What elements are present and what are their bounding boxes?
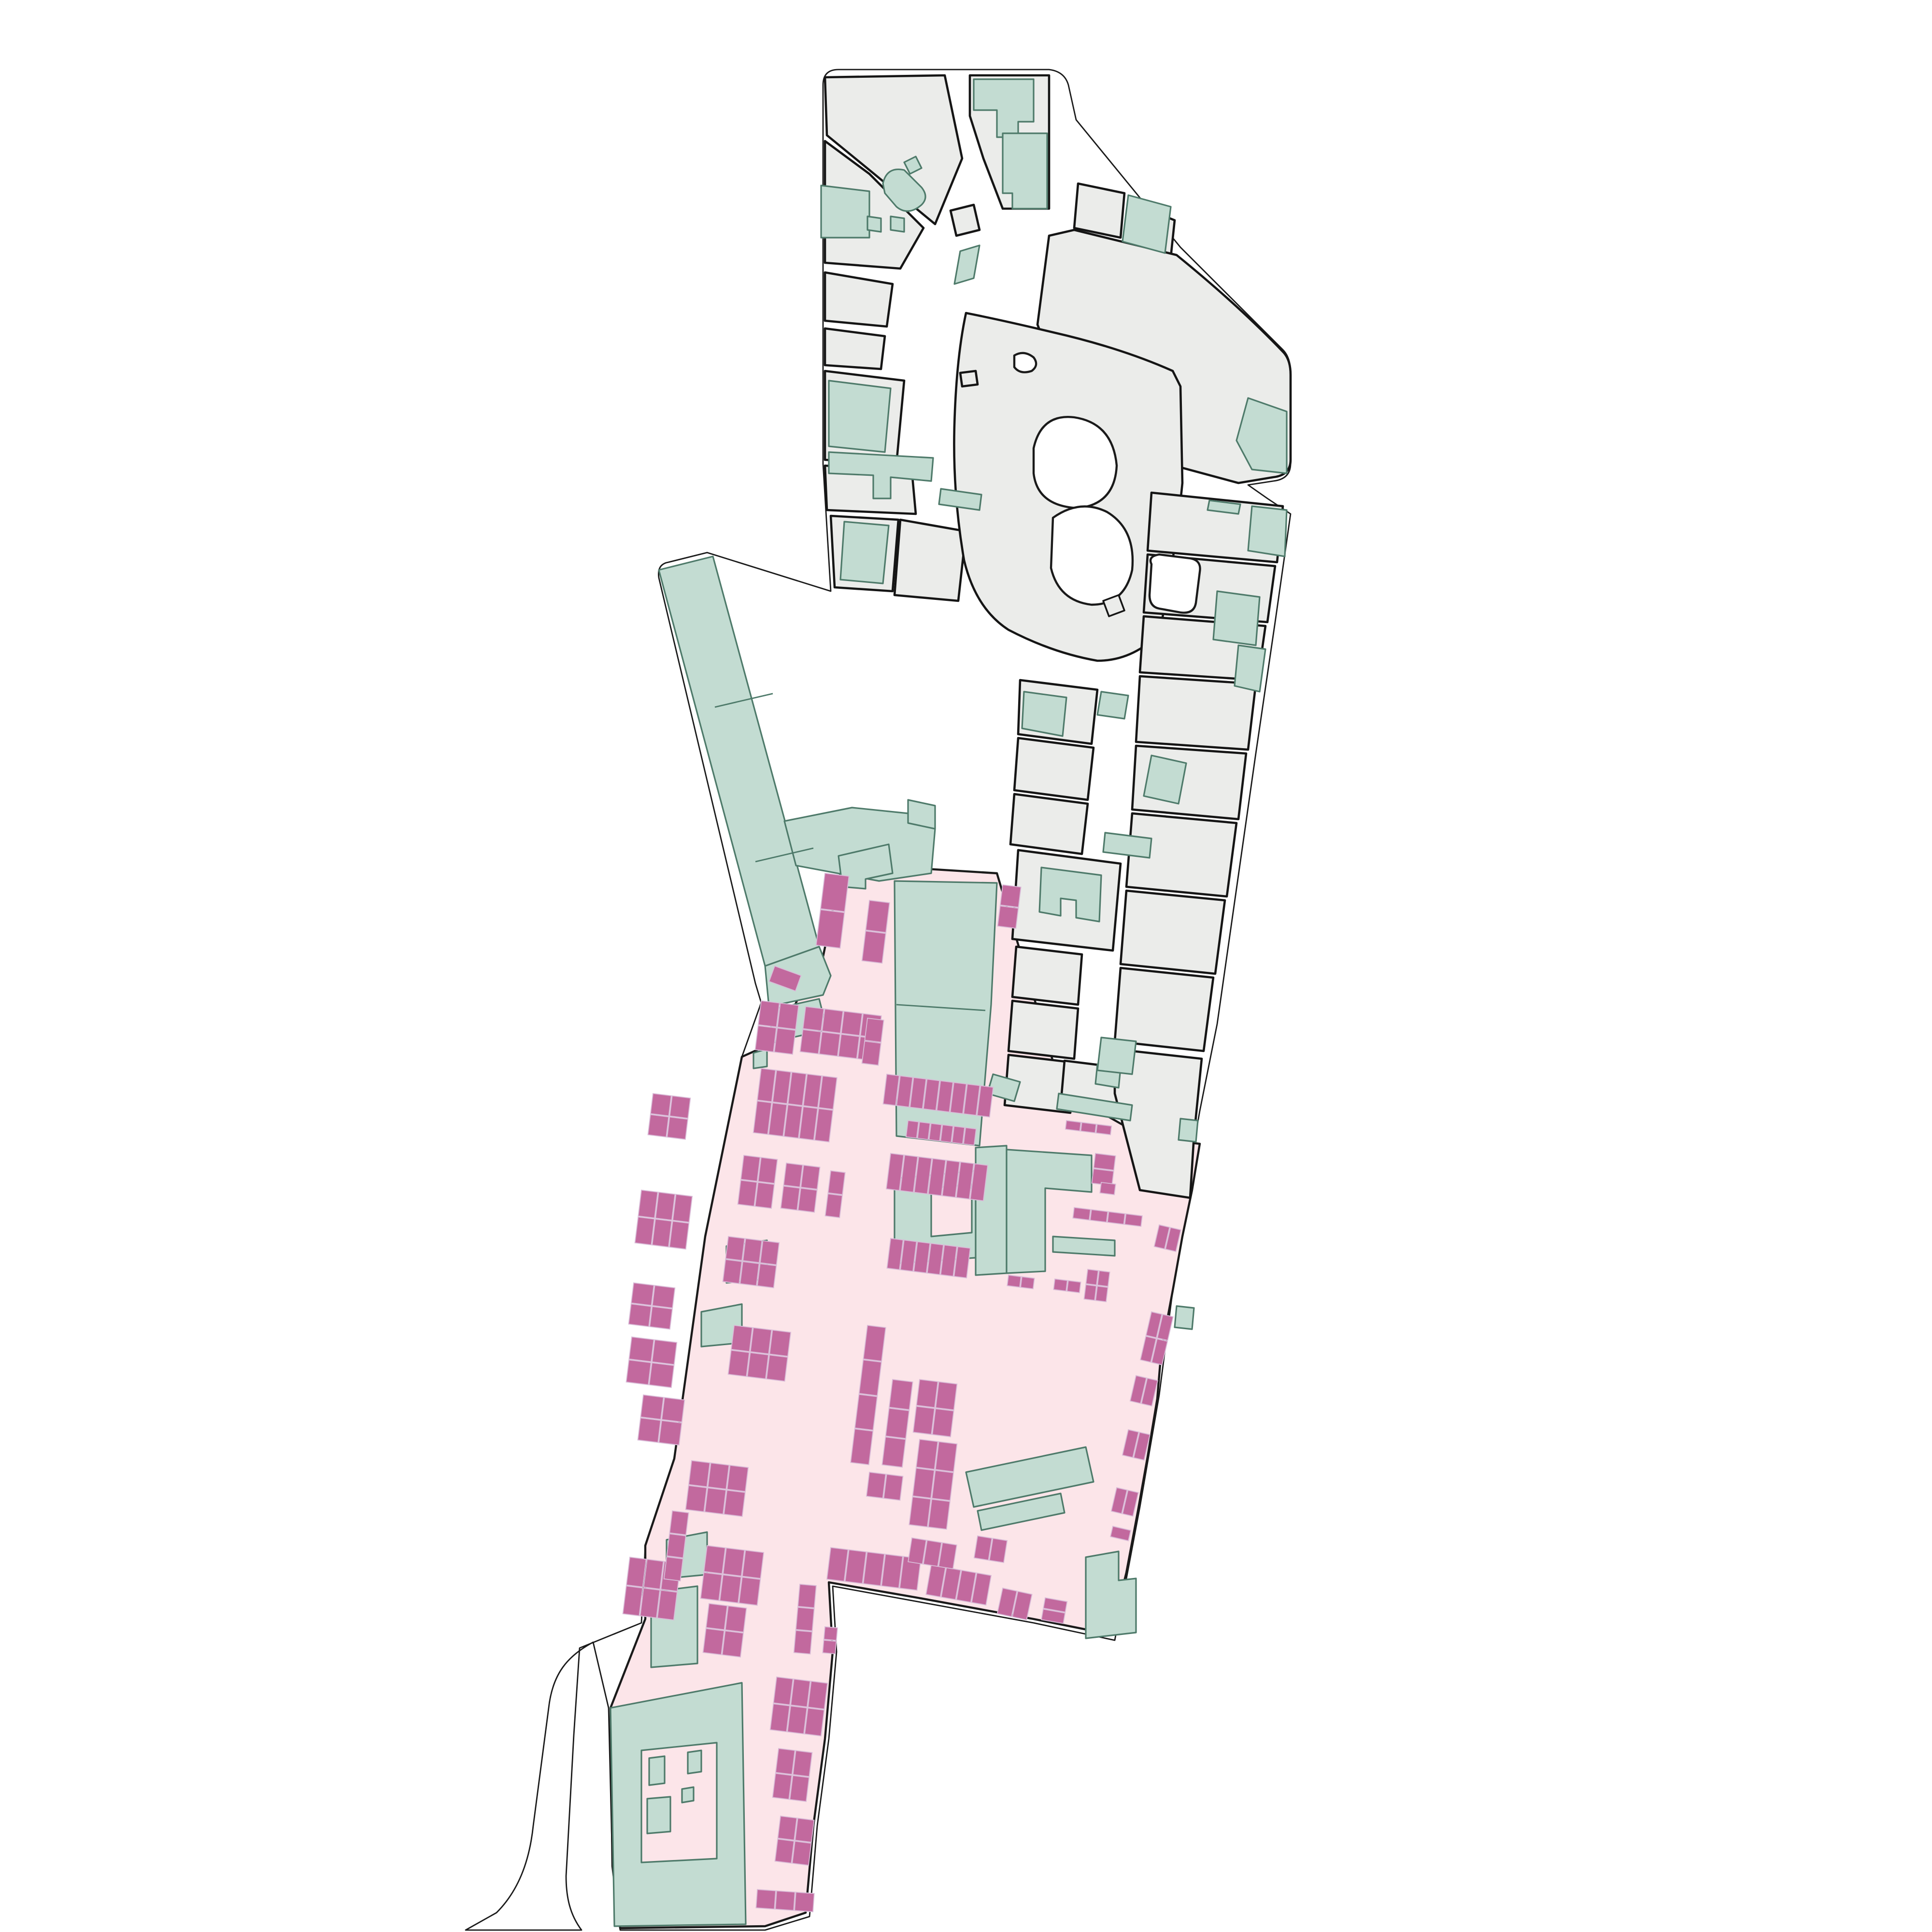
market-stall — [862, 1041, 881, 1065]
market-stall — [758, 1157, 778, 1183]
market-stall — [913, 1406, 935, 1435]
market-stall — [882, 1437, 906, 1467]
market-stall — [816, 909, 845, 948]
market-stall — [631, 1283, 654, 1306]
market-stall — [743, 1238, 762, 1263]
market-stall — [822, 1009, 843, 1033]
market-stall — [1100, 1182, 1115, 1194]
teal-building — [647, 1797, 670, 1833]
market-stall — [670, 1096, 691, 1118]
market-stall — [855, 1394, 877, 1430]
market-stall — [881, 1554, 903, 1588]
stall-cluster — [635, 1190, 693, 1249]
market-stall — [932, 1470, 953, 1500]
market-stall — [703, 1629, 724, 1655]
market-stall — [845, 1550, 867, 1584]
market-stall — [770, 1704, 790, 1732]
market-stall — [629, 1337, 653, 1362]
gray-block — [825, 272, 893, 327]
teal-building — [1175, 1306, 1194, 1329]
market-stall — [623, 1586, 643, 1616]
teal-building — [908, 800, 935, 829]
market-stall — [952, 1126, 965, 1144]
market-stall — [841, 1011, 862, 1036]
market-stall — [758, 1001, 780, 1027]
market-stall — [664, 1557, 683, 1581]
market-stall — [1007, 1275, 1021, 1287]
market-stall — [989, 1538, 1007, 1563]
market-stall — [793, 1750, 812, 1776]
teal-building — [867, 216, 881, 232]
market-stall — [825, 1194, 842, 1218]
teal-building — [1097, 1037, 1136, 1074]
plaza-pond — [1150, 554, 1200, 613]
teal-building — [1248, 506, 1287, 556]
market-stall — [757, 1264, 776, 1288]
market-stall — [1084, 1285, 1096, 1300]
market-stall — [727, 1465, 748, 1492]
market-stall — [928, 1499, 950, 1529]
market-stall — [794, 1631, 812, 1654]
market-stall — [819, 1032, 840, 1056]
teal-building — [840, 522, 889, 583]
market-stall — [728, 1350, 750, 1377]
market-stall — [863, 1325, 885, 1361]
market-stall — [756, 1889, 776, 1909]
market-stall — [866, 900, 889, 933]
market-stall — [884, 1474, 903, 1500]
market-stall — [724, 1490, 745, 1516]
market-stall — [657, 1590, 677, 1620]
market-stall — [652, 1340, 677, 1364]
market-stall — [1095, 1286, 1108, 1302]
market-stall — [706, 1604, 727, 1630]
gray-block — [951, 205, 980, 236]
stall-cluster — [638, 1395, 685, 1445]
market-stall — [1065, 1121, 1081, 1131]
market-stall — [755, 1026, 777, 1052]
stall-cluster — [648, 1094, 691, 1139]
gray-block — [1074, 184, 1124, 238]
market-stall — [778, 1816, 796, 1840]
market-stall — [686, 1486, 707, 1512]
market-stall — [909, 1497, 931, 1527]
teal-building — [1097, 692, 1128, 719]
gray-block — [1009, 1001, 1078, 1059]
market-stall — [667, 1117, 688, 1139]
market-stall — [916, 1379, 938, 1407]
market-stall — [626, 1557, 646, 1587]
market-stall — [1086, 1269, 1098, 1285]
market-stall — [800, 1030, 821, 1054]
market-stall — [773, 1677, 793, 1705]
market-stall — [828, 1171, 845, 1194]
market-stall — [913, 1468, 935, 1498]
market-stall — [1097, 1271, 1109, 1286]
market-stall — [1021, 1277, 1034, 1289]
market-stall — [689, 1461, 710, 1487]
market-stall — [659, 1421, 682, 1445]
market-stall — [798, 1584, 816, 1608]
market-stall — [1000, 885, 1021, 907]
market-stall — [940, 1125, 953, 1142]
teal-building — [954, 245, 980, 284]
gray-block — [1012, 947, 1082, 1005]
market-stall — [790, 1776, 809, 1802]
market-stall — [824, 1627, 838, 1640]
teal-building — [682, 1787, 694, 1803]
market-stall — [655, 1192, 675, 1220]
market-stall — [932, 1408, 953, 1436]
market-stall — [886, 1408, 909, 1439]
market-stall — [998, 906, 1019, 928]
market-stall — [767, 1355, 788, 1381]
market-stall — [638, 1418, 661, 1443]
market-stall — [918, 1122, 930, 1139]
teal-building — [1144, 755, 1186, 804]
gray-block — [1121, 891, 1225, 974]
teal-building — [1022, 692, 1066, 736]
market-stall — [742, 1550, 764, 1578]
market-stall — [1108, 1212, 1125, 1224]
stall-cluster — [626, 1337, 677, 1388]
market-stall — [755, 1182, 774, 1208]
market-stall — [723, 1548, 744, 1576]
market-stall — [739, 1577, 760, 1605]
market-stall — [640, 1395, 663, 1420]
market-stall — [635, 1217, 654, 1245]
market-stall — [662, 1397, 684, 1422]
market-stall — [778, 1003, 799, 1029]
market-stall — [867, 1472, 886, 1498]
market-stall — [738, 1180, 757, 1207]
market-stall — [640, 1588, 660, 1618]
market-stall — [1090, 1209, 1108, 1222]
stall-cluster — [1100, 1182, 1115, 1194]
market-stall — [936, 1382, 957, 1410]
market-stall — [823, 1640, 836, 1654]
market-stall — [906, 1121, 919, 1138]
market-stall — [720, 1575, 741, 1603]
market-stall — [795, 1818, 814, 1842]
market-stall — [821, 873, 849, 912]
market-stall — [725, 1236, 744, 1261]
teal-building — [753, 1049, 767, 1068]
market-stall — [751, 1328, 772, 1354]
teal-building — [1179, 1119, 1198, 1142]
market-stall — [701, 1573, 722, 1601]
market-stall — [863, 1552, 884, 1586]
market-stall — [723, 1260, 742, 1284]
market-stall — [936, 1442, 957, 1472]
market-stall — [827, 1548, 848, 1581]
gray-block — [1010, 794, 1088, 854]
market-stall — [650, 1307, 672, 1329]
teal-building — [1213, 591, 1260, 645]
market-stall — [667, 1534, 686, 1558]
teal-building — [1235, 645, 1265, 692]
market-stall — [725, 1606, 747, 1632]
market-stall — [769, 1330, 791, 1356]
market-stall — [648, 1115, 669, 1137]
market-stall — [781, 1186, 800, 1210]
market-stall — [747, 1352, 768, 1378]
site-plan-svg — [0, 0, 1932, 1932]
market-stall — [1096, 1124, 1111, 1135]
market-stall — [865, 1018, 883, 1042]
gray-block — [1115, 968, 1213, 1051]
market-stall — [791, 1679, 810, 1707]
market-stall — [731, 1325, 753, 1351]
teal-building — [688, 1750, 701, 1774]
market-stall — [644, 1559, 664, 1589]
market-stall — [803, 1007, 824, 1031]
market-stall — [760, 1241, 779, 1265]
teal-building — [829, 381, 891, 452]
market-stall — [669, 1221, 689, 1249]
market-stall — [1067, 1280, 1080, 1293]
market-stall — [889, 1379, 913, 1410]
gray-block — [825, 328, 885, 369]
market-stall — [838, 1034, 859, 1058]
market-stall — [722, 1631, 743, 1657]
market-stall — [705, 1488, 726, 1514]
teal-building — [659, 556, 819, 966]
plaza-pond — [1014, 353, 1036, 372]
market-stall — [859, 1360, 881, 1395]
market-stall — [792, 1841, 811, 1865]
market-stall — [626, 1360, 651, 1385]
page — [0, 0, 1932, 1932]
market-stall — [796, 1607, 814, 1631]
market-stall — [651, 1094, 671, 1116]
market-stall — [673, 1194, 692, 1222]
market-stall — [805, 1708, 824, 1736]
market-stall — [801, 1165, 820, 1189]
market-stall — [704, 1546, 725, 1574]
market-stall — [929, 1123, 941, 1141]
teal-building — [891, 216, 904, 232]
market-stall — [1125, 1214, 1142, 1226]
teal-building — [821, 185, 869, 238]
market-stall — [638, 1190, 657, 1218]
market-stall — [653, 1285, 675, 1308]
market-stall — [964, 1128, 976, 1145]
gray-block — [895, 520, 966, 601]
market-stall — [851, 1429, 873, 1464]
stall-cluster — [756, 1889, 814, 1912]
market-stall — [741, 1155, 760, 1181]
market-stall — [916, 1439, 938, 1469]
market-stall — [629, 1304, 652, 1327]
gray-block — [1014, 738, 1094, 800]
market-stall — [776, 1748, 795, 1775]
market-stall — [669, 1511, 688, 1535]
market-stall — [775, 1839, 794, 1863]
market-stall — [798, 1188, 817, 1212]
market-stall — [1053, 1279, 1067, 1291]
stall-cluster — [629, 1283, 675, 1329]
market-stall — [974, 1536, 992, 1560]
market-stall — [708, 1463, 729, 1489]
market-stall — [783, 1163, 802, 1187]
market-stall — [774, 1028, 796, 1054]
market-stall — [740, 1262, 759, 1286]
market-stall — [1094, 1153, 1115, 1170]
market-stall — [808, 1681, 827, 1709]
teal-building — [1053, 1236, 1115, 1256]
gray-block — [1012, 850, 1121, 951]
market-stall — [1073, 1207, 1090, 1220]
market-stall — [773, 1774, 792, 1800]
market-stall — [862, 931, 886, 964]
market-stall — [787, 1706, 807, 1734]
market-stall — [775, 1891, 795, 1911]
gray-block — [960, 371, 978, 386]
teal-building — [649, 1756, 665, 1785]
market-stall — [652, 1219, 671, 1247]
market-stall — [795, 1892, 814, 1912]
market-stall — [1081, 1122, 1096, 1133]
market-stall — [649, 1363, 674, 1387]
